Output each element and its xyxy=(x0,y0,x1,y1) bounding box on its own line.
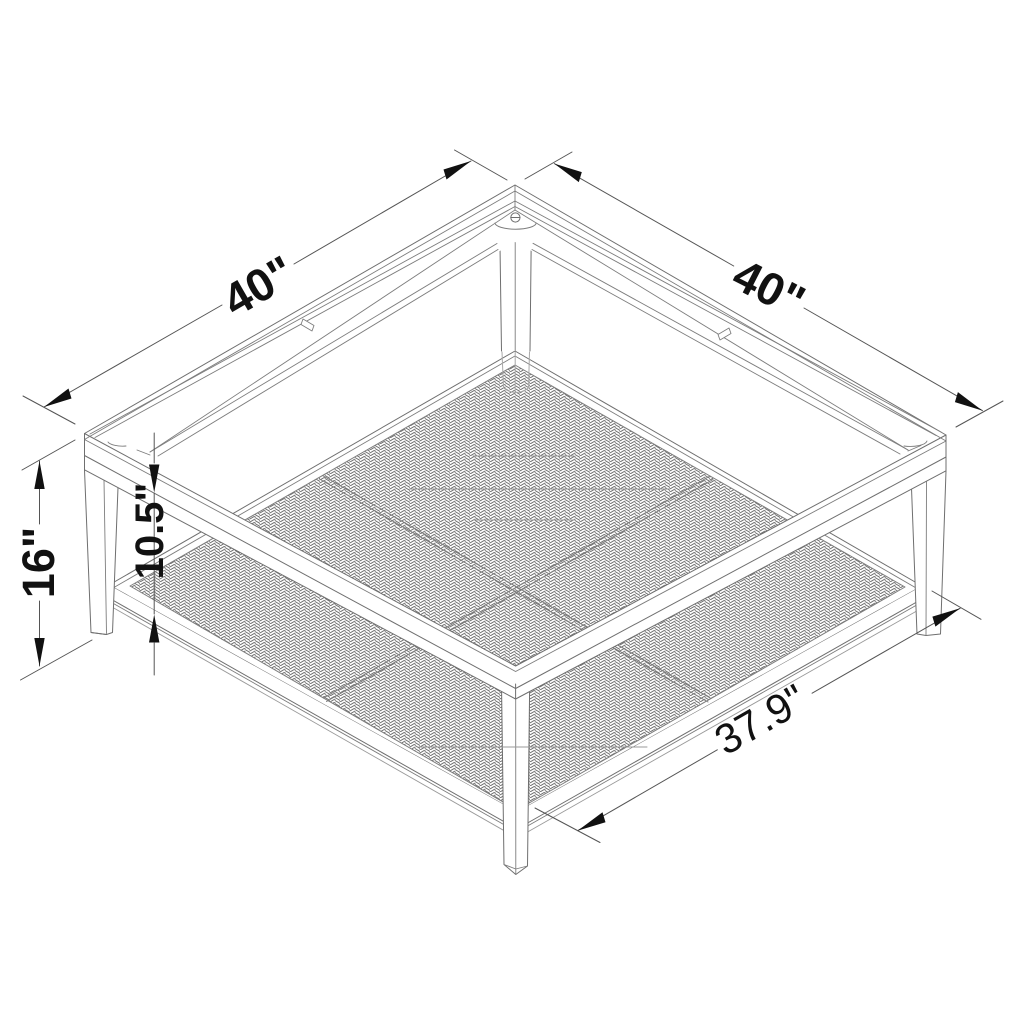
svg-text:10.5": 10.5" xyxy=(128,483,172,580)
svg-text:16": 16" xyxy=(13,527,64,598)
